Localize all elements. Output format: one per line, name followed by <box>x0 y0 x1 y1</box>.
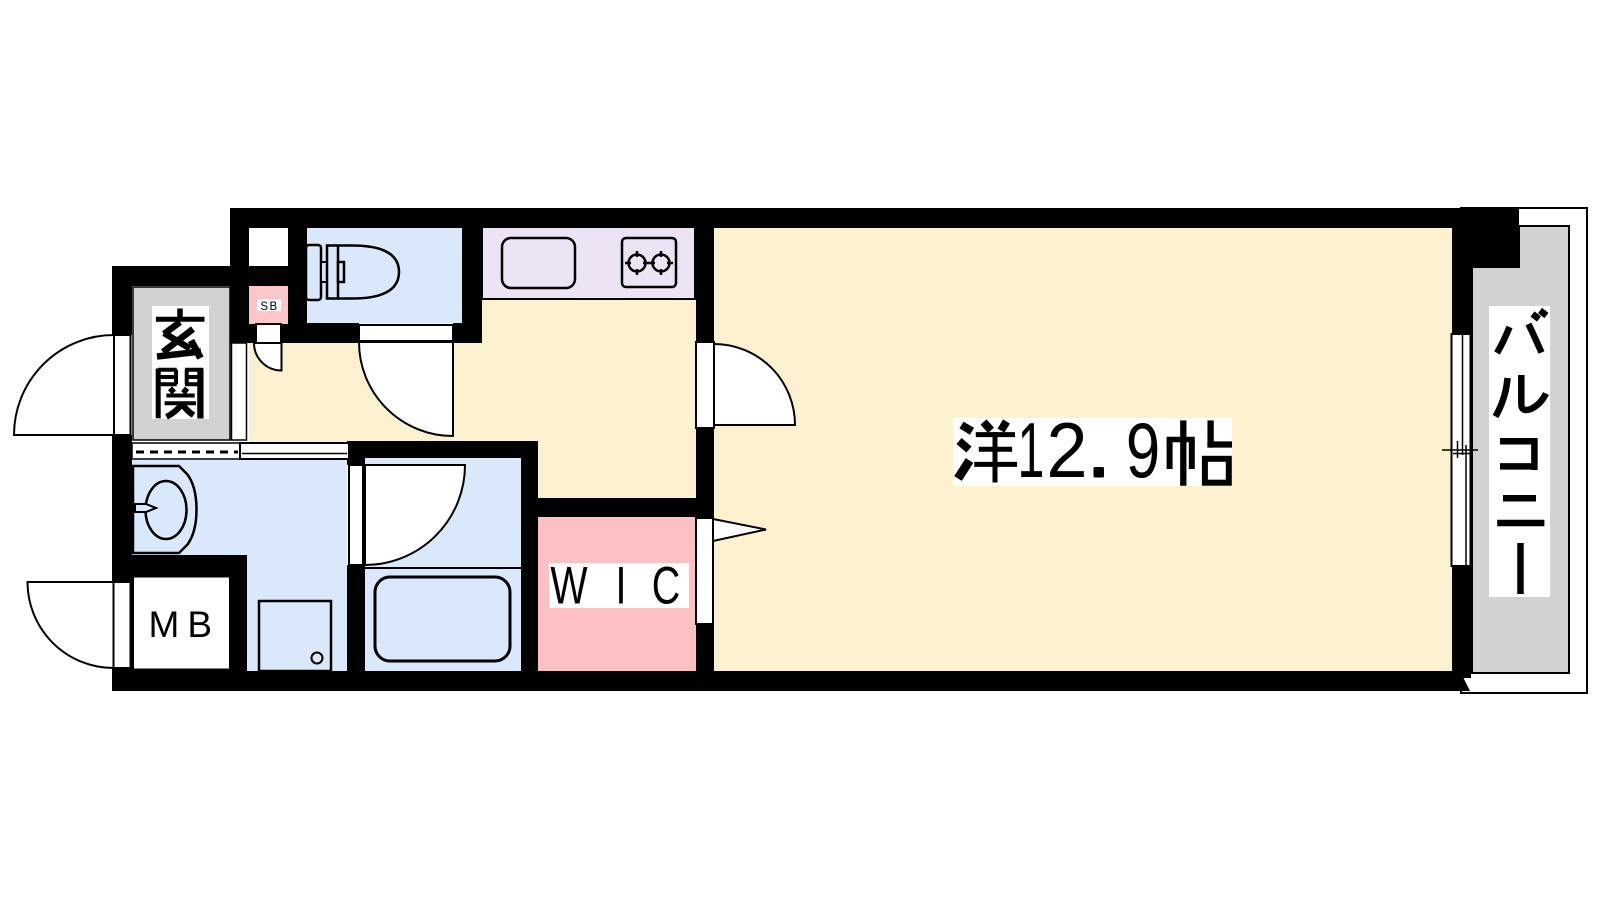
svg-text:MB: MB <box>149 604 221 645</box>
svg-text:1: 1 <box>1018 406 1045 494</box>
svg-text:2: 2 <box>1046 407 1087 494</box>
svg-text:C: C <box>652 556 680 615</box>
svg-text:W: W <box>550 556 587 615</box>
svg-text:I: I <box>616 556 627 615</box>
svg-text:SB: SB <box>260 301 278 313</box>
svg-text:9: 9 <box>1126 406 1160 494</box>
